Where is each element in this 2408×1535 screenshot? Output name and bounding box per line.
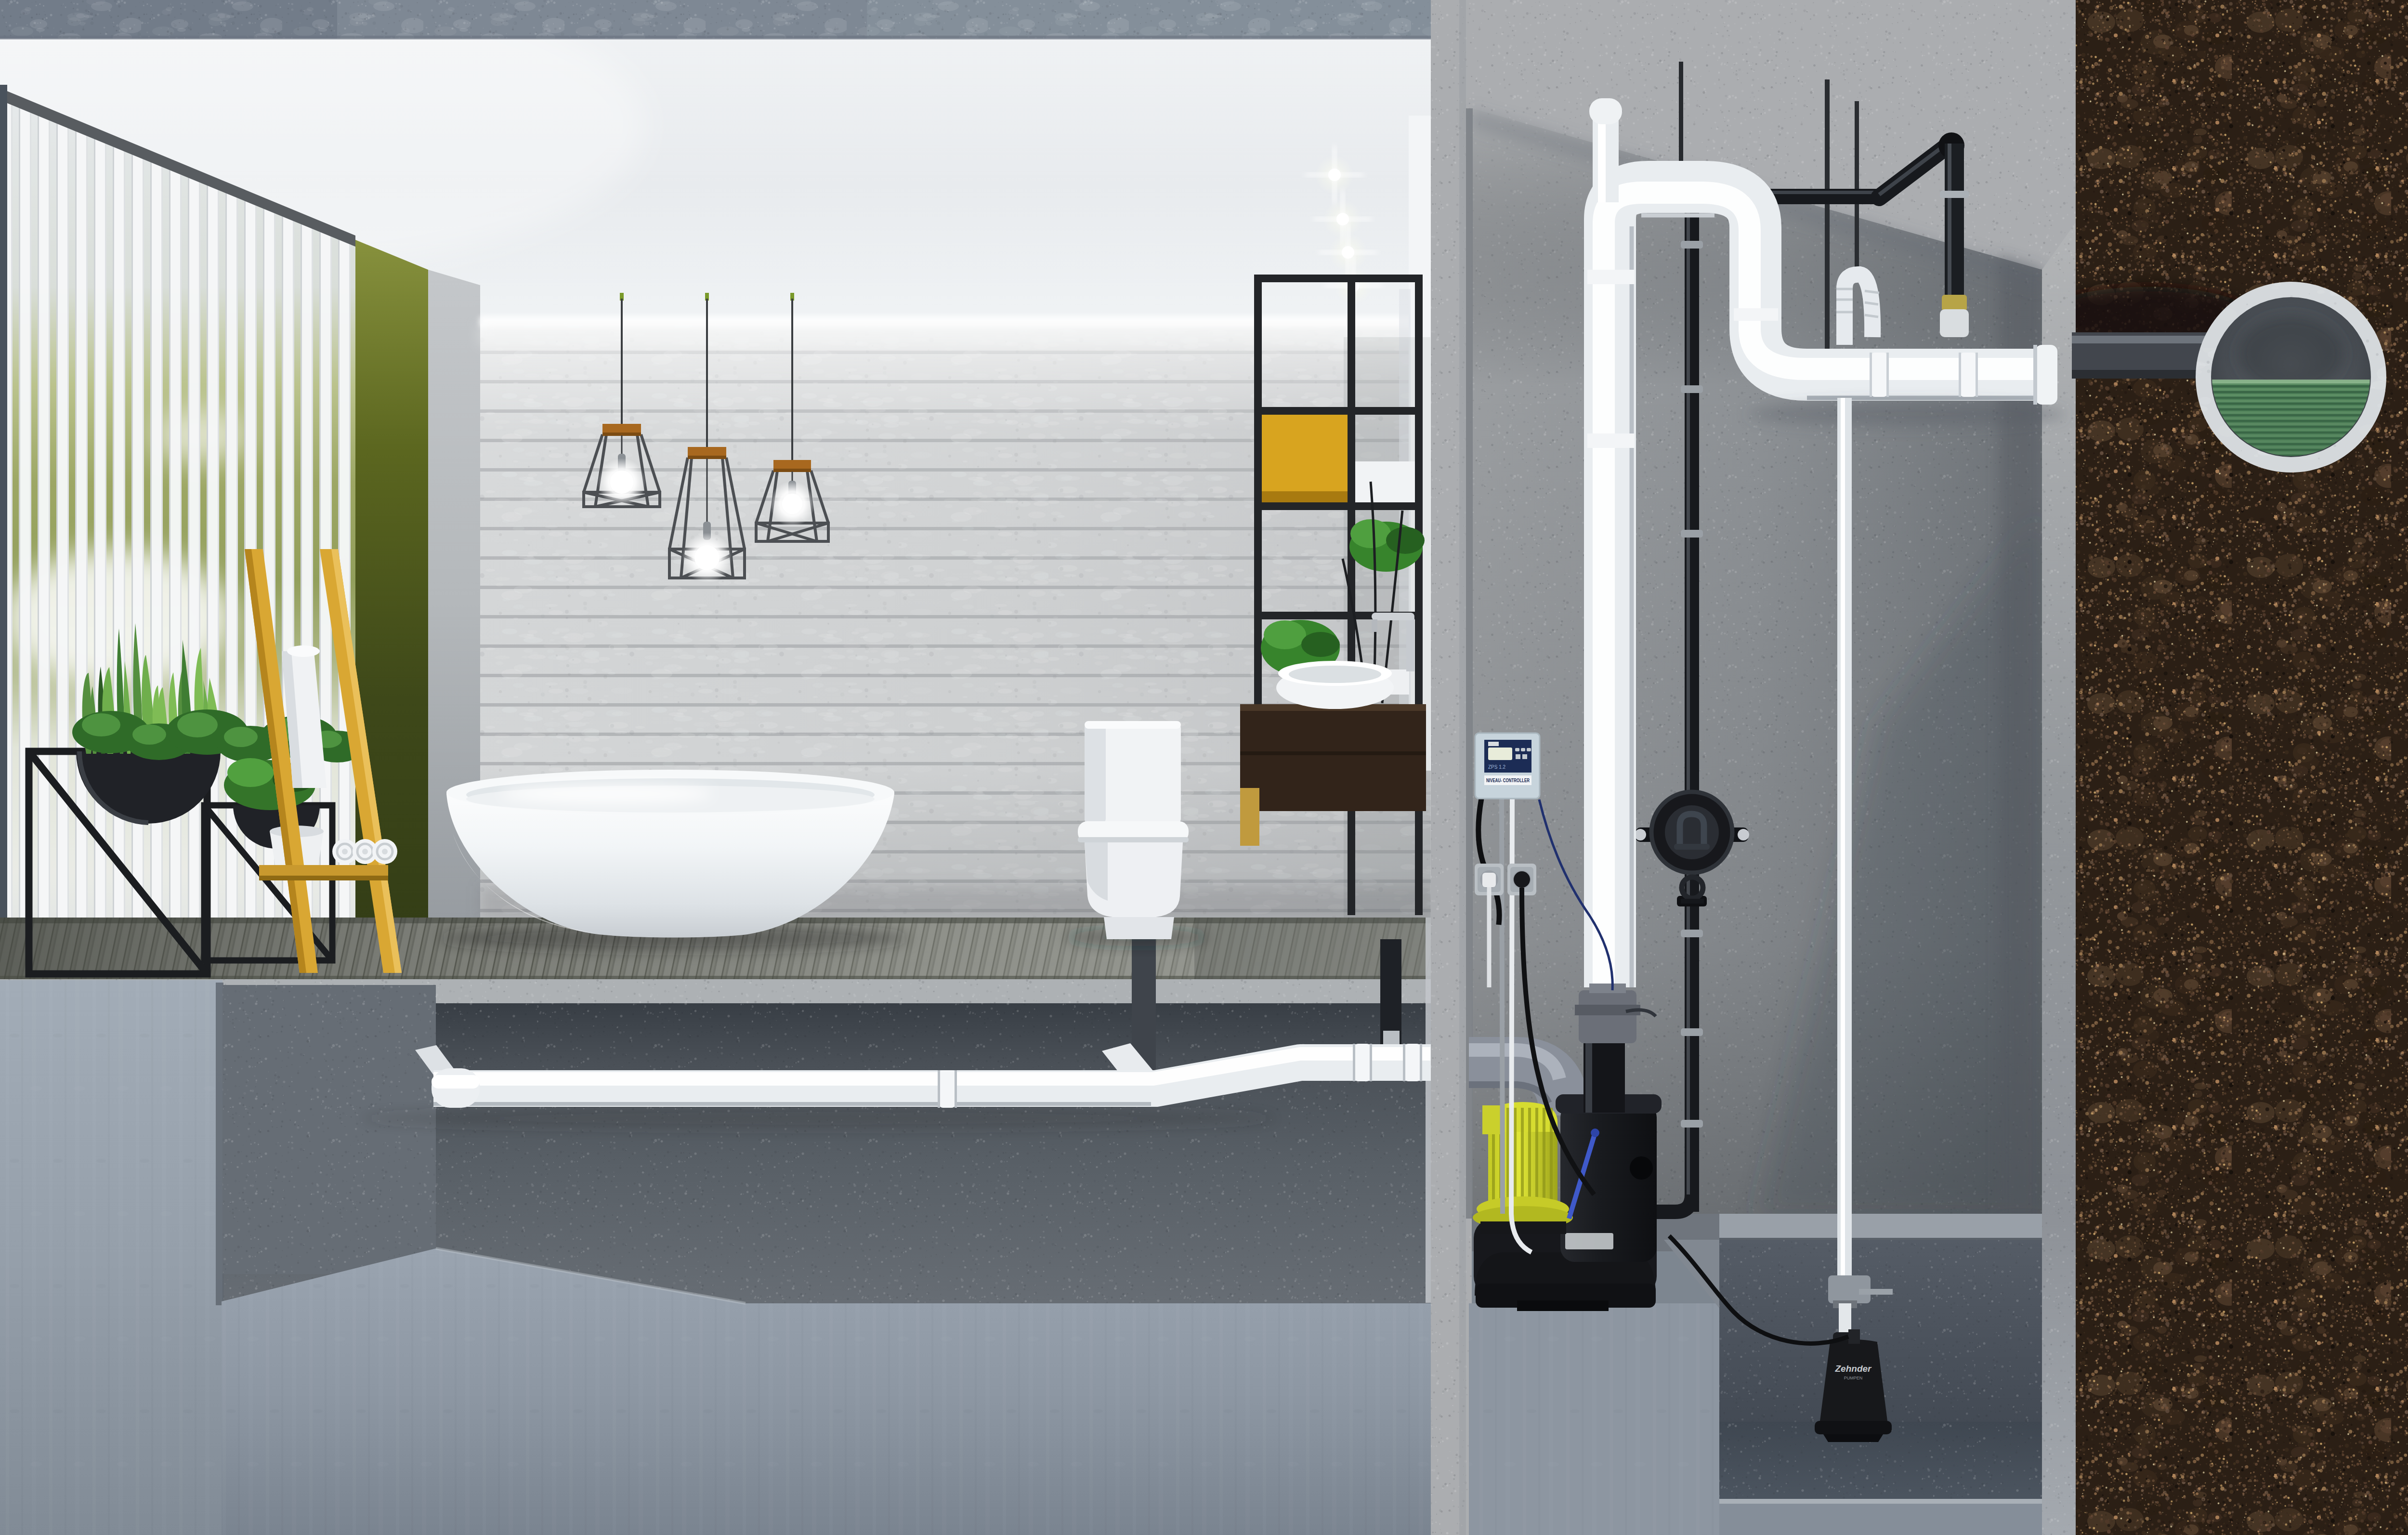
svg-text:NIVEAU- CONTROLLER: NIVEAU- CONTROLLER	[1486, 777, 1530, 783]
svg-text:ZPS 1.2: ZPS 1.2	[1488, 764, 1506, 770]
svg-text:PUMPEN: PUMPEN	[1844, 1376, 1863, 1380]
svg-text:Zehnder: Zehnder	[1835, 1364, 1872, 1374]
